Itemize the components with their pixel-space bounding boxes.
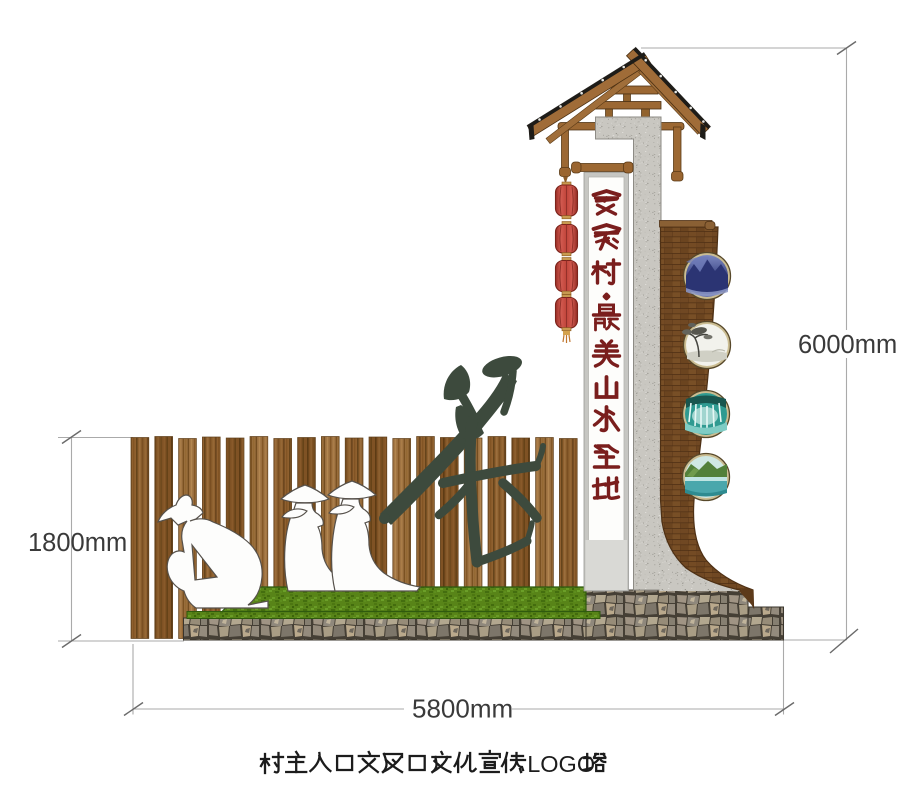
svg-text:5800mm: 5800mm [412, 694, 513, 724]
svg-text:LOGO: LOGO [527, 751, 595, 777]
svg-text:1800mm: 1800mm [28, 529, 127, 557]
svg-text:6000mm: 6000mm [798, 331, 897, 359]
